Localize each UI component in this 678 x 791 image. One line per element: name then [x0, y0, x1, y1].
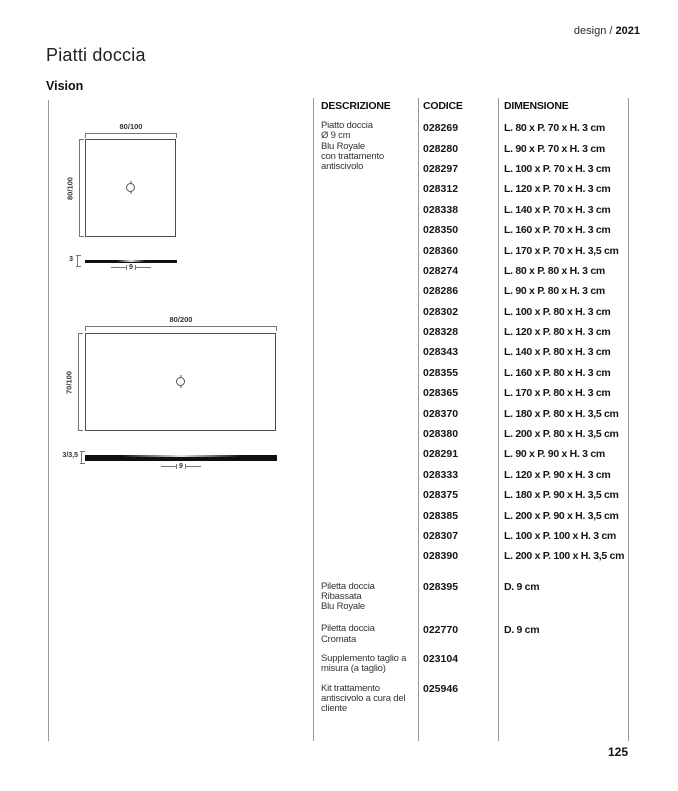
edition-year: 2021	[616, 25, 640, 37]
table-row: 028350L. 160 x P. 70 x H. 3 cm	[415, 220, 629, 240]
drain-icon	[126, 183, 135, 192]
product-description: Piatto docciaØ 9 cmBlu Royalecon trattam…	[313, 118, 415, 567]
product-code: 028333	[423, 469, 458, 481]
product-dimension: L. 200 x P. 80 x H. 3,5 cm	[504, 428, 619, 440]
table-row: 028328L. 120 x P. 80 x H. 3 cm	[415, 322, 629, 342]
product-dimension: L. 100 x P. 70 x H. 3 cm	[504, 163, 610, 175]
product-dimension: D. 9 cm	[504, 581, 539, 593]
rows-column: 028395D. 9 cm	[415, 582, 629, 613]
product-code: 028365	[423, 387, 458, 399]
product-dimension: D. 9 cm	[504, 624, 539, 636]
table-row: 028395D. 9 cm	[415, 582, 629, 592]
product-dimension: L. 200 x P. 90 x H. 3,5 cm	[504, 510, 619, 522]
dimension-line	[135, 267, 151, 268]
table-row: 023104	[415, 654, 629, 664]
product-code: 028280	[423, 143, 458, 155]
table-row: 028365L. 170 x P. 80 x H. 3 cm	[415, 383, 629, 403]
description-line: antiscivolo	[321, 162, 415, 172]
product-dimension: L. 90 x P. 90 x H. 3 cm	[504, 448, 605, 460]
drain-recess	[121, 455, 241, 457]
product-code: 028390	[423, 550, 458, 562]
product-group: Kit trattamentoantiscivolo a cura delcli…	[313, 684, 629, 715]
product-code: 028350	[423, 224, 458, 236]
product-dimension: L. 120 x P. 80 x H. 3 cm	[504, 326, 610, 338]
plan1-width-dimension-line	[85, 133, 177, 134]
product-code: 028269	[423, 122, 458, 134]
product-dimension: L. 200 x P. 100 x H. 3,5 cm	[504, 550, 624, 562]
product-dimension: L. 100 x P. 100 x H. 3 cm	[504, 530, 616, 542]
product-group: Piletta docciaRibassataBlu Royale028395D…	[313, 582, 629, 613]
rows-column: 028269L. 80 x P. 70 x H. 3 cm028280L. 90…	[415, 118, 629, 567]
table-row: 028274L. 80 x P. 80 x H. 3 cm	[415, 261, 629, 281]
description-line: cliente	[321, 704, 415, 714]
rows-column: 023104	[415, 654, 629, 675]
product-code: 025946	[423, 683, 458, 695]
edition-label: design / 2021	[574, 25, 640, 37]
table-row: 028297L. 100 x P. 70 x H. 3 cm	[415, 159, 629, 179]
product-code: 022770	[423, 624, 458, 636]
description-line: misura (a taglio)	[321, 664, 415, 674]
product-code: 028274	[423, 265, 458, 277]
product-dimension: L. 160 x P. 80 x H. 3 cm	[504, 367, 610, 379]
plan1-depth-label: 80/100	[66, 167, 75, 211]
plan2-depth-dimension-line	[78, 333, 79, 431]
table-row: 028375L. 180 x P. 90 x H. 3,5 cm	[415, 485, 629, 505]
table-row: 028333L. 120 x P. 90 x H. 3 cm	[415, 465, 629, 485]
product-description: Piletta docciaCromata	[313, 624, 415, 645]
product-dimension: L. 90 x P. 70 x H. 3 cm	[504, 143, 605, 155]
table-row: 028307L. 100 x P. 100 x H. 3 cm	[415, 526, 629, 546]
product-dimension: L. 160 x P. 70 x H. 3 cm	[504, 224, 610, 236]
profile2-drain-dimension: 9	[161, 463, 201, 470]
profile2-height-label: 3/3,5	[48, 452, 78, 459]
table-row: 028370L. 180 x P. 80 x H. 3,5 cm	[415, 403, 629, 423]
profile2-height-dimension	[81, 451, 82, 464]
product-code: 028385	[423, 510, 458, 522]
profile1-height-label: 3	[50, 256, 73, 263]
table-row: 028360L. 170 x P. 70 x H. 3,5 cm	[415, 240, 629, 260]
product-dimension: L. 80 x P. 70 x H. 3 cm	[504, 122, 605, 134]
table-row: 028286L. 90 x P. 80 x H. 3 cm	[415, 281, 629, 301]
price-table: DESCRIZIONE CODICE DIMENSIONE Piatto doc…	[313, 98, 629, 741]
product-description: Piletta docciaRibassataBlu Royale	[313, 582, 415, 613]
product-dimension: L. 100 x P. 80 x H. 3 cm	[504, 306, 610, 318]
product-code: 028297	[423, 163, 458, 175]
table-body: Piatto docciaØ 9 cmBlu Royalecon trattam…	[313, 118, 629, 724]
dimension-line	[111, 267, 127, 268]
product-dimension: L. 90 x P. 80 x H. 3 cm	[504, 285, 605, 297]
tray-profile-bar	[85, 260, 177, 263]
product-code: 023104	[423, 653, 458, 665]
tray-profile-bar	[85, 455, 277, 461]
column-header-codice: CODICE	[423, 100, 463, 112]
product-code: 028343	[423, 346, 458, 358]
dimension-line	[185, 466, 201, 467]
left-margin-rule	[48, 100, 49, 741]
table-row: 028355L. 160 x P. 80 x H. 3 cm	[415, 363, 629, 383]
product-dimension: L. 180 x P. 80 x H. 3,5 cm	[504, 408, 619, 420]
product-code: 028307	[423, 530, 458, 542]
drain-recess	[117, 260, 145, 262]
table-row: 025946	[415, 684, 629, 694]
profile1-drain-dimension: 9	[111, 264, 151, 271]
product-code: 028395	[423, 581, 458, 593]
product-code: 028286	[423, 285, 458, 297]
profile2-drain-label: 9	[177, 463, 185, 470]
dimension-line	[161, 466, 177, 467]
rows-column: 025946	[415, 684, 629, 715]
plan2-depth-label: 70/100	[65, 361, 74, 405]
catalog-page: design / 2021 Piatti doccia Vision 80/10…	[0, 0, 678, 791]
product-dimension: L. 170 x P. 80 x H. 3 cm	[504, 387, 610, 399]
edition-prefix: design /	[574, 25, 616, 37]
table-row: 028269L. 80 x P. 70 x H. 3 cm	[415, 118, 629, 138]
table-row: 028380L. 200 x P. 80 x H. 3,5 cm	[415, 424, 629, 444]
table-row: 022770D. 9 cm	[415, 624, 629, 634]
plan1-width-label: 80/100	[85, 122, 177, 131]
description-line: Blu Royale	[321, 602, 415, 612]
page-title: Piatti doccia	[46, 45, 146, 66]
product-group: Supplemento taglio amisura (a taglio)023…	[313, 654, 629, 675]
table-row: 028385L. 200 x P. 90 x H. 3,5 cm	[415, 505, 629, 525]
product-code: 028380	[423, 428, 458, 440]
product-dimension: L. 180 x P. 90 x H. 3,5 cm	[504, 489, 619, 501]
profile1-drain-label: 9	[127, 264, 135, 271]
product-group: Piletta docciaCromata022770D. 9 cm	[313, 624, 629, 645]
table-row: 028291L. 90 x P. 90 x H. 3 cm	[415, 444, 629, 464]
page-number: 125	[608, 745, 628, 759]
product-description: Supplemento taglio amisura (a taglio)	[313, 654, 415, 675]
table-row: 028302L. 100 x P. 80 x H. 3 cm	[415, 302, 629, 322]
product-dimension: L. 140 x P. 70 x H. 3 cm	[504, 204, 610, 216]
product-code: 028312	[423, 183, 458, 195]
product-code: 028360	[423, 245, 458, 257]
product-code: 028338	[423, 204, 458, 216]
plan1-depth-dimension-line	[79, 139, 80, 237]
drain-icon	[176, 377, 185, 386]
rows-column: 022770D. 9 cm	[415, 624, 629, 645]
table-row: 028343L. 140 x P. 80 x H. 3 cm	[415, 342, 629, 362]
profile1-height-dimension	[77, 255, 78, 267]
product-code: 028328	[423, 326, 458, 338]
column-header-dimensione: DIMENSIONE	[504, 100, 569, 112]
series-name: Vision	[46, 79, 83, 93]
product-code: 028355	[423, 367, 458, 379]
product-description: Kit trattamentoantiscivolo a cura delcli…	[313, 684, 415, 715]
product-dimension: L. 170 x P. 70 x H. 3,5 cm	[504, 245, 619, 257]
product-code: 028375	[423, 489, 458, 501]
product-dimension: L. 120 x P. 70 x H. 3 cm	[504, 183, 610, 195]
plan2-width-dimension-line	[85, 326, 277, 327]
product-dimension: L. 120 x P. 90 x H. 3 cm	[504, 469, 610, 481]
table-row: 028312L. 120 x P. 70 x H. 3 cm	[415, 179, 629, 199]
product-dimension: L. 80 x P. 80 x H. 3 cm	[504, 265, 605, 277]
description-line: Cromata	[321, 635, 415, 645]
table-row: 028280L. 90 x P. 70 x H. 3 cm	[415, 138, 629, 158]
product-code: 028291	[423, 448, 458, 460]
product-code: 028370	[423, 408, 458, 420]
table-row: 028338L. 140 x P. 70 x H. 3 cm	[415, 200, 629, 220]
product-group: Piatto docciaØ 9 cmBlu Royalecon trattam…	[313, 118, 629, 567]
product-code: 028302	[423, 306, 458, 318]
plan2-width-label: 80/200	[85, 315, 277, 324]
table-row: 028390L. 200 x P. 100 x H. 3,5 cm	[415, 546, 629, 566]
column-header-descrizione: DESCRIZIONE	[321, 100, 391, 112]
product-dimension: L. 140 x P. 80 x H. 3 cm	[504, 346, 610, 358]
